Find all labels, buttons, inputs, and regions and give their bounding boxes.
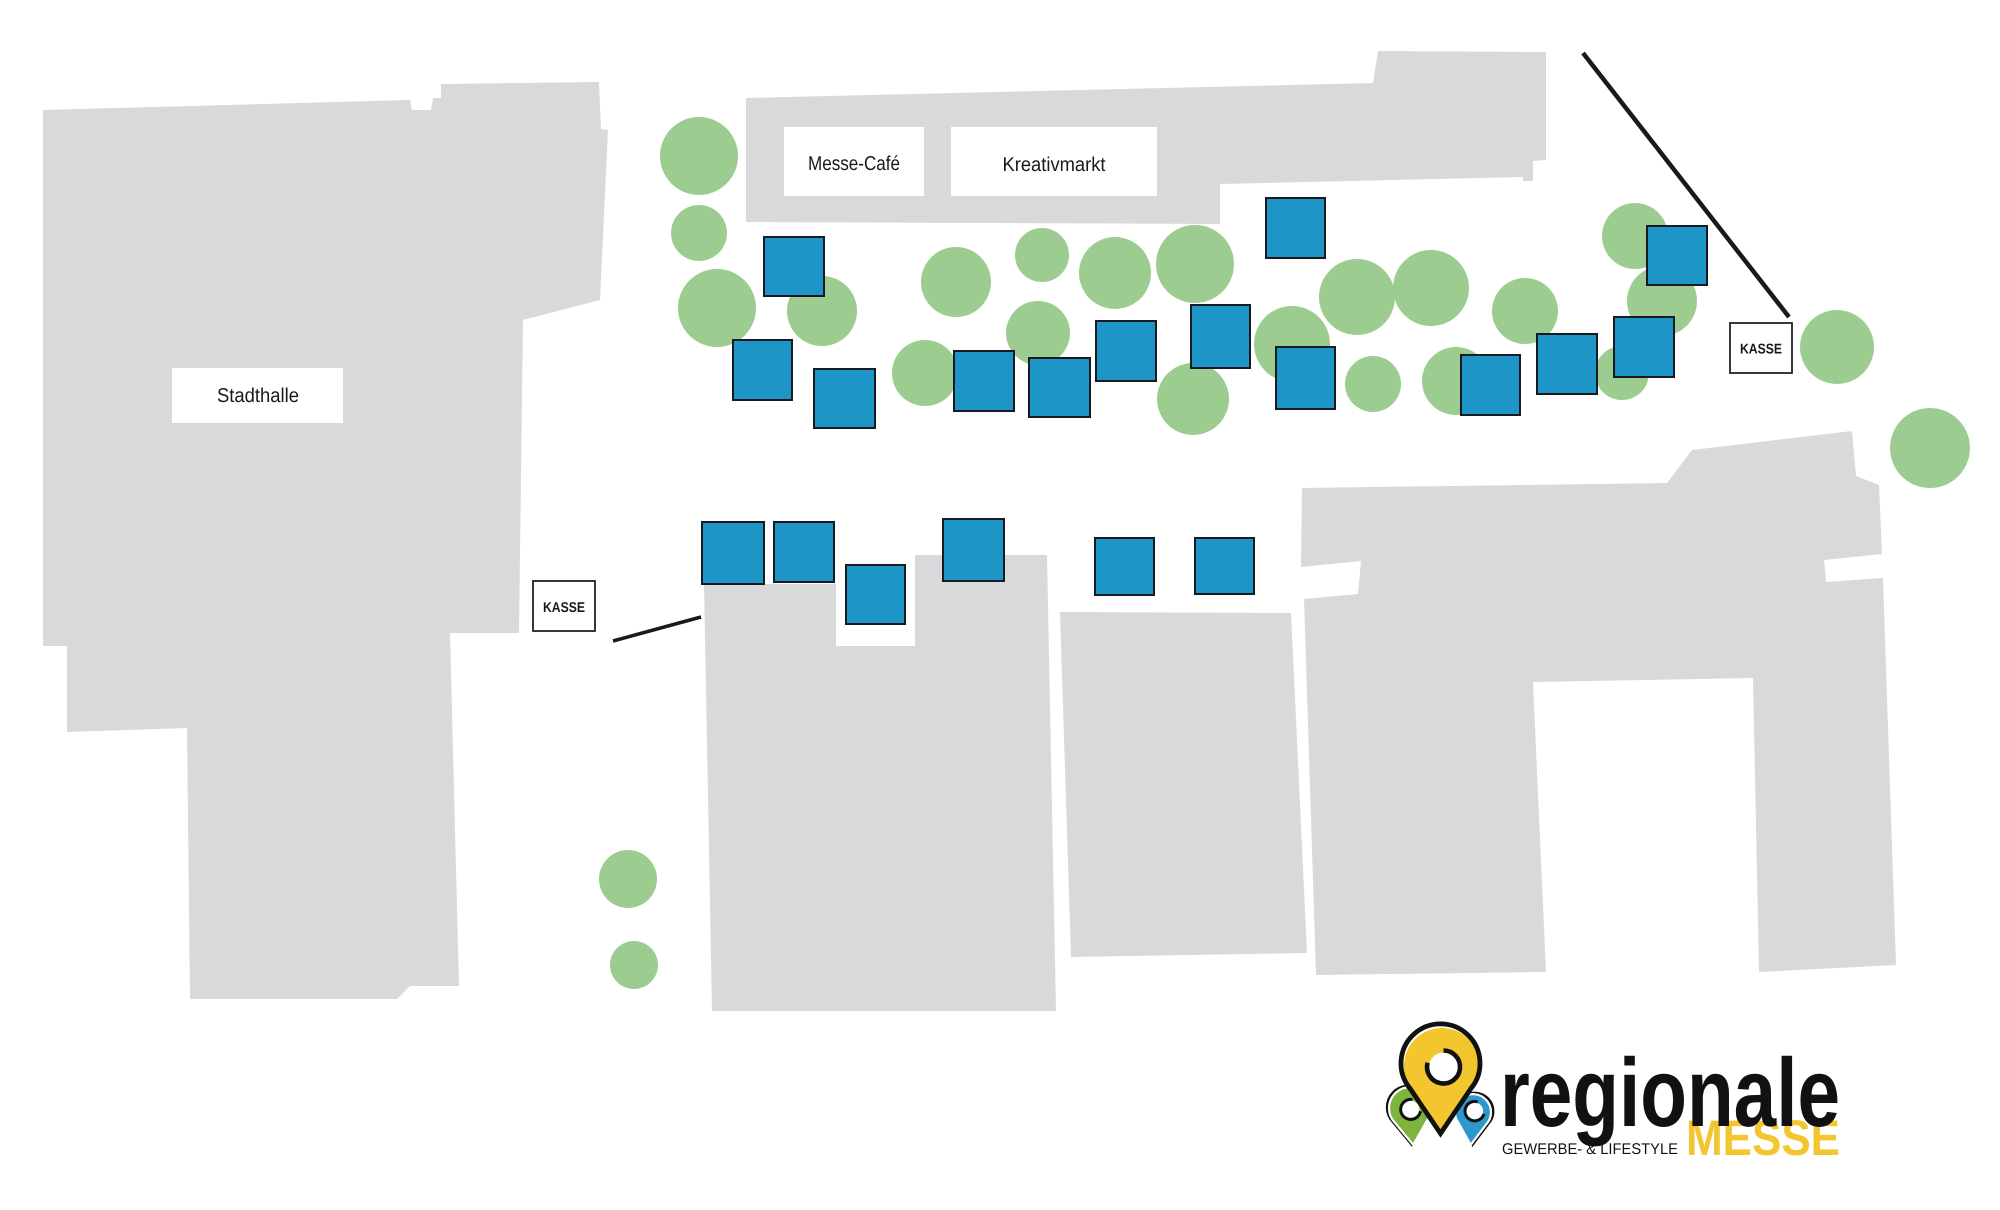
svg-text:Messe-Café: Messe-Café	[808, 153, 900, 175]
svg-text:KASSE: KASSE	[543, 600, 585, 616]
svg-text:regionale: regionale	[1500, 1038, 1840, 1147]
svg-text:GEWERBE- & LIFESTYLE: GEWERBE- & LIFESTYLE	[1502, 1141, 1678, 1158]
svg-text:Stadthalle: Stadthalle	[217, 385, 299, 407]
svg-text:Kreativmarkt: Kreativmarkt	[1003, 154, 1106, 176]
svg-text:KASSE: KASSE	[1740, 342, 1782, 358]
